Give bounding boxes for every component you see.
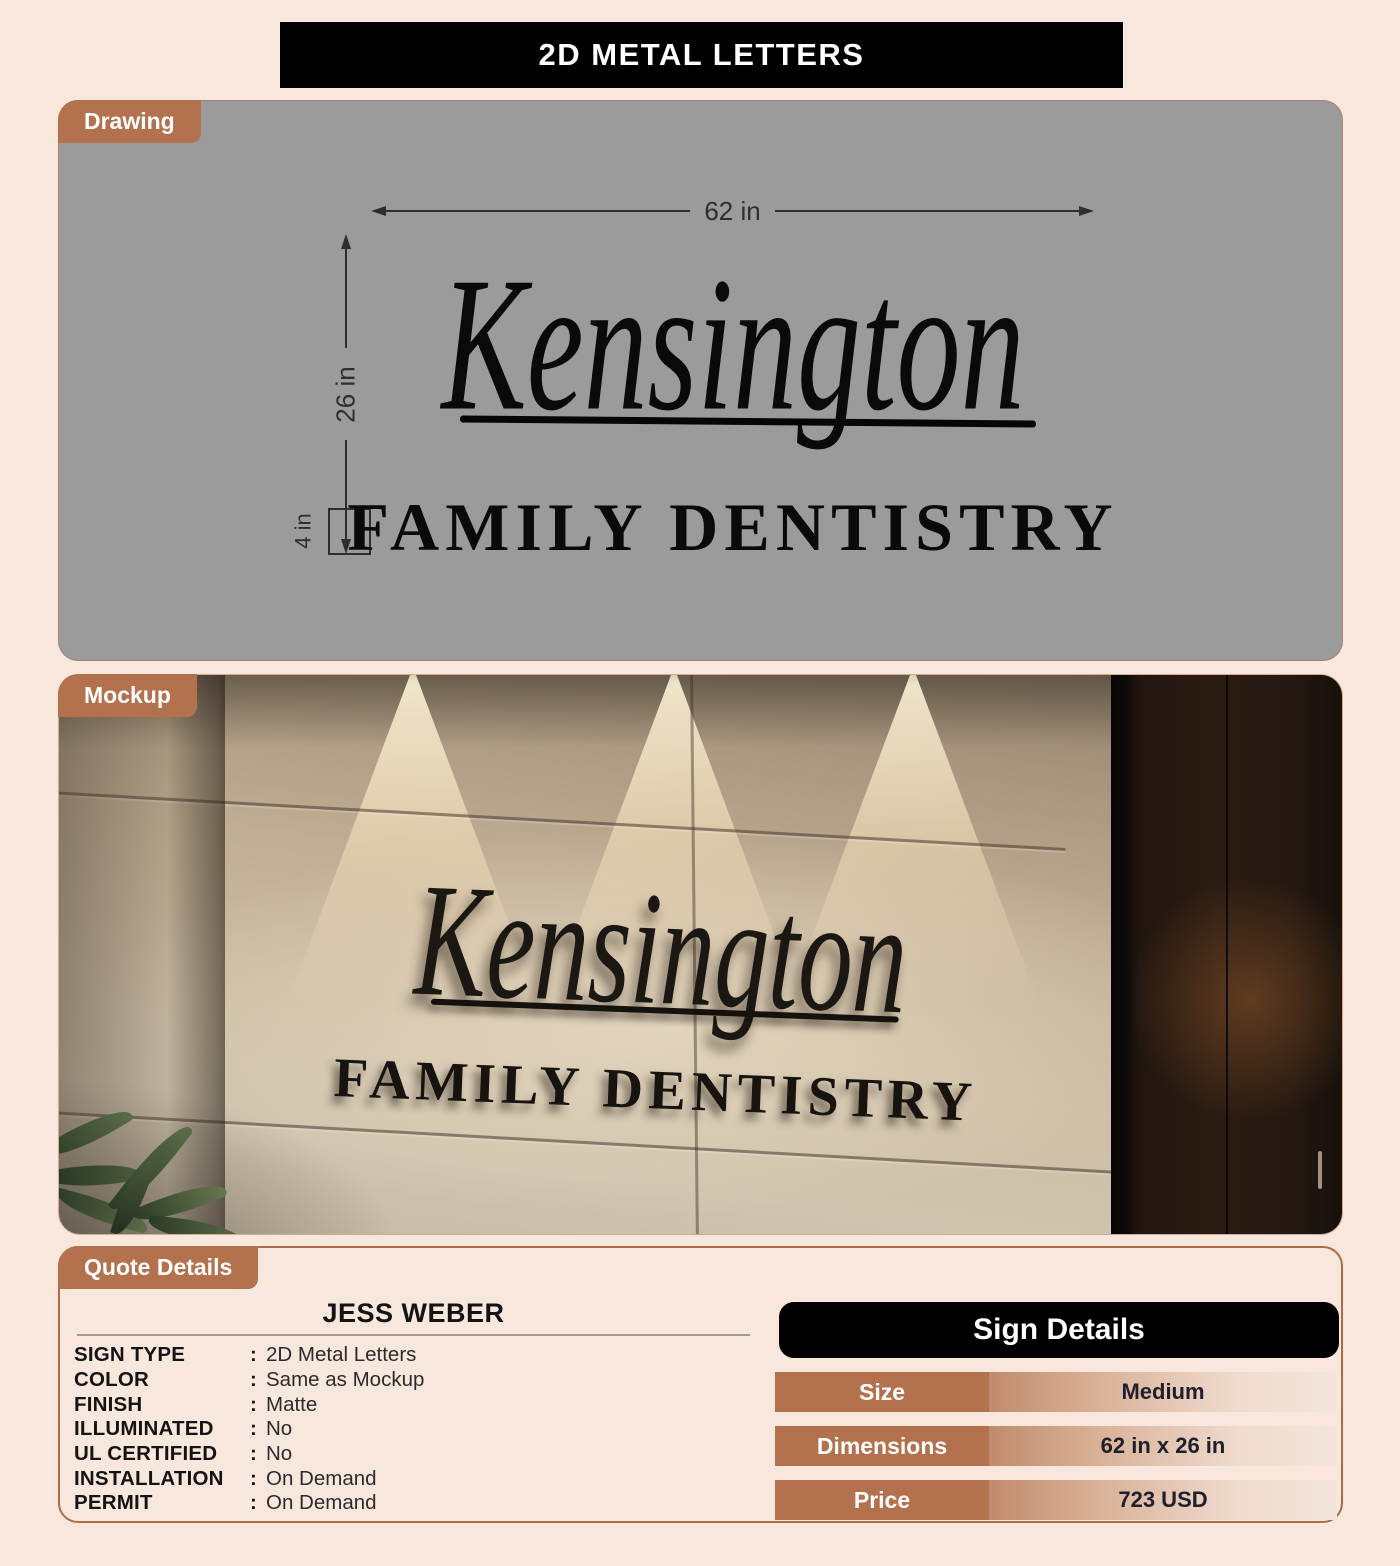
- quote-field-row: FINISHMatte: [74, 1392, 424, 1417]
- quote-details-section-tab: Quote Details: [58, 1246, 258, 1289]
- field-value: On Demand: [266, 1467, 377, 1491]
- page-title-bar: 2D METAL LETTERS: [280, 22, 1123, 88]
- quote-fields: SIGN TYPE2D Metal Letters COLORSame as M…: [74, 1343, 424, 1516]
- mockup-section-tab: Mockup: [58, 674, 197, 717]
- arrow-left-icon: [371, 206, 386, 216]
- divider: [77, 1334, 750, 1336]
- field-label: FINISH: [74, 1393, 250, 1417]
- field-value: On Demand: [266, 1491, 377, 1515]
- field-value: Matte: [266, 1393, 317, 1417]
- field-label: COLOR: [74, 1368, 250, 1392]
- field-label: ILLUMINATED: [74, 1417, 250, 1441]
- sign-details-value-price: 723 USD: [989, 1480, 1337, 1520]
- arrow-right-icon: [1079, 206, 1094, 216]
- height-dimension-label: 26 in: [331, 366, 362, 422]
- plant-leaves: [58, 1113, 281, 1235]
- width-dimension: 62 in: [371, 198, 1094, 224]
- customer-name: JESS WEBER: [77, 1298, 750, 1329]
- page-title: 2D METAL LETTERS: [539, 37, 865, 73]
- arrow-up-icon: [341, 234, 351, 249]
- wood-door: [1111, 675, 1343, 1234]
- sign-details-label-size: Size: [775, 1372, 989, 1412]
- quote-field-row: UL CERTIFIEDNo: [74, 1442, 424, 1467]
- quote-field-row: INSTALLATIONOn Demand: [74, 1466, 424, 1491]
- door-handle: [1318, 1151, 1322, 1189]
- dimension-line: [345, 249, 347, 348]
- quote-page: { "header": { "title": "2D METAL LETTERS…: [0, 0, 1400, 1566]
- drawing-tab-label: Drawing: [84, 108, 175, 135]
- sign-subtext: FAMILY DENTISTRY: [347, 493, 1118, 561]
- width-dimension-label: 62 in: [690, 196, 774, 227]
- field-value: No: [266, 1442, 292, 1466]
- sign-subtext: FAMILY DENTISTRY: [333, 1050, 979, 1131]
- door-seam: [1226, 675, 1228, 1234]
- field-label: SIGN TYPE: [74, 1343, 250, 1367]
- drawing-section-tab: Drawing: [58, 100, 201, 143]
- quote-field-row: PERMITOn Demand: [74, 1491, 424, 1516]
- quote-field-row: COLORSame as Mockup: [74, 1368, 424, 1393]
- dimension-line: [386, 210, 690, 212]
- sign-details-title: Sign Details: [973, 1313, 1145, 1347]
- sign-details-label-dimensions: Dimensions: [775, 1426, 989, 1466]
- drawing-panel: 62 in 26 in 4 in Kensington FAMILY DENTI…: [58, 100, 1343, 661]
- quote-details-tab-label: Quote Details: [84, 1254, 232, 1281]
- letter-height-dimension-label: 4 in: [291, 513, 317, 548]
- field-value: 2D Metal Letters: [266, 1343, 416, 1367]
- field-value: Same as Mockup: [266, 1368, 424, 1392]
- sign-details-header: Sign Details: [779, 1302, 1339, 1358]
- sign-script-text: Kensington: [441, 248, 1024, 440]
- quote-field-row: SIGN TYPE2D Metal Letters: [74, 1343, 424, 1368]
- field-label: INSTALLATION: [74, 1467, 250, 1491]
- mockup-panel: Kensington FAMILY DENTISTRY: [58, 674, 1343, 1235]
- sign-details-value-dimensions: 62 in x 26 in: [989, 1426, 1337, 1466]
- sign-details-value-size: Medium: [989, 1372, 1337, 1412]
- field-label: PERMIT: [74, 1491, 250, 1515]
- field-label: UL CERTIFIED: [74, 1442, 250, 1466]
- mockup-tab-label: Mockup: [84, 682, 171, 709]
- sign-details-label-price: Price: [775, 1480, 989, 1520]
- field-value: No: [266, 1417, 292, 1441]
- dimension-line: [775, 210, 1079, 212]
- quote-field-row: ILLUMINATEDNo: [74, 1417, 424, 1442]
